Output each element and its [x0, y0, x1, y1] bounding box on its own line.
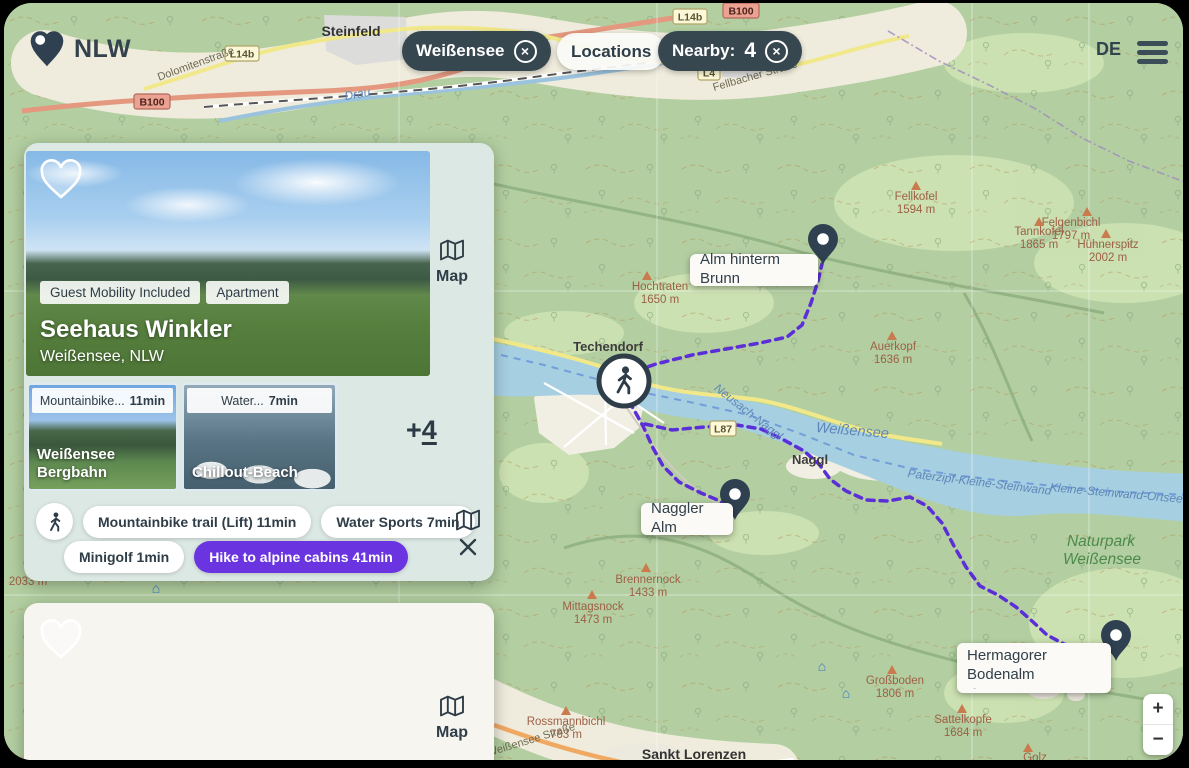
thumbnail-caption: Weißensee Bergbahn — [37, 446, 147, 484]
close-card-icon[interactable] — [458, 537, 478, 557]
show-on-map-button[interactable]: Map — [420, 695, 484, 742]
map-peak-elevation: 1594 m — [897, 204, 935, 216]
property-card-seehaus-winkler[interactable]: Guest Mobility Included Apartment Seehau… — [24, 143, 494, 581]
favorite-heart-icon[interactable] — [38, 619, 84, 661]
locations-label: Locations — [571, 42, 651, 62]
map-peak-elevation: 1684 m — [944, 727, 982, 739]
activity-chip-watersports[interactable]: Water Sports 7min — [321, 506, 474, 538]
map-peak-label: Hochtraten — [632, 281, 688, 293]
svg-text:B100: B100 — [728, 6, 753, 18]
svg-text:L87: L87 — [714, 424, 732, 436]
map-icon — [439, 239, 465, 261]
map-peak-label: Tannkofel — [1014, 226, 1063, 238]
map-peak-label: Großboden — [866, 675, 924, 687]
map-button-label: Map — [420, 268, 484, 286]
walker-position-icon[interactable] — [599, 356, 649, 406]
hut-icon: ⌂ — [818, 658, 826, 674]
activity-chip-minigolf[interactable]: Minigolf 1min — [64, 541, 184, 573]
map-peak-elevation: 1473 m — [574, 614, 612, 626]
property-title: Seehaus Winkler — [40, 316, 420, 344]
property-location: Weißensee, NLW — [40, 348, 420, 366]
map-button-label: Map — [420, 724, 484, 742]
map-label: Naggl — [792, 452, 828, 467]
map-label: Techendorf — [573, 339, 643, 354]
road-badge-L14b: L14b — [673, 9, 707, 24]
external-link-icon — [967, 688, 982, 690]
svg-text:B100: B100 — [139, 97, 164, 109]
activity-thumbnail-chillout-beach[interactable]: Water...7min Chillout-Beach — [182, 383, 337, 491]
map-peak-elevation: 1433 m — [629, 587, 667, 599]
map-label: Naturpark — [1067, 533, 1136, 550]
activity-thumbnail-bergbahn[interactable]: Mountainbike...11min Weißensee Bergbahn — [27, 383, 178, 491]
property-photo[interactable]: Guest Mobility Included Apartment Seehau… — [26, 151, 430, 376]
map-peak-label: Golz — [1023, 752, 1047, 760]
property-photo[interactable]: Hotel Spa Yoga — [26, 611, 430, 760]
filter-chip-weissensee[interactable]: Weißensee × — [402, 31, 551, 71]
activity-chip-hike-selected[interactable]: Hike to alpine cabins 41min — [194, 541, 408, 573]
map-zoom-control: + − — [1143, 694, 1173, 755]
map-peak-elevation: 1636 m — [874, 354, 912, 366]
map-peak-label: Fellkofel — [895, 191, 938, 203]
activity-chip-mountainbike[interactable]: Mountainbike trail (Lift) 11min — [83, 506, 311, 538]
map-icon-small[interactable] — [455, 509, 481, 531]
walking-mode-chip[interactable] — [36, 503, 73, 540]
logo-text: NLW — [74, 35, 131, 64]
activity-chip-row-2: Minigolf 1min Hike to alpine cabins 41mi… — [64, 541, 408, 573]
map-peak-elevation: 1865 m — [1020, 239, 1058, 251]
app-window: L14bL14bB100B100L4L87 SteinfeldFellbachT… — [0, 0, 1189, 768]
nearby-count: 4 — [744, 39, 756, 63]
show-on-map-button[interactable]: Map — [420, 239, 484, 286]
map-peak-label: Hühnerspitz — [1077, 239, 1139, 251]
road-badge-L87: L87 — [710, 421, 736, 436]
property-meta: Guest Mobility Included Apartment Seehau… — [40, 281, 420, 366]
map-label: Sankt Lorenzen — [642, 746, 746, 760]
thumbnail-badge: Water...7min — [187, 388, 332, 413]
favorite-heart-icon[interactable] — [38, 159, 84, 201]
map-peak-elevation: 1806 m — [876, 688, 914, 700]
road-badge-B100: B100 — [723, 3, 759, 18]
locations-button[interactable]: Locations — [557, 33, 665, 70]
road-badge-B100: B100 — [134, 94, 170, 109]
map-label: Weißensee — [1063, 551, 1141, 568]
map-label: Steinfeld — [321, 23, 380, 39]
nearby-chip[interactable]: Nearby: 4 × — [658, 31, 802, 71]
map-peak-elevation: 2002 m — [1089, 252, 1127, 264]
map-peak-elevation: 763 m — [550, 729, 582, 741]
map-icon — [439, 695, 465, 717]
nearby-label: Nearby: — [672, 41, 735, 61]
hut-icon: ⌂ — [152, 580, 160, 596]
map-peak-label: Sattelkopfe — [934, 714, 992, 726]
filter-chip-label: Weißensee — [416, 41, 505, 61]
walking-person-icon — [46, 512, 64, 532]
hut-icon: ⌂ — [842, 685, 850, 701]
thumbnail-caption: Chillout-Beach — [192, 464, 302, 483]
activity-chip-row-1: Mountainbike trail (Lift) 11min Water Sp… — [36, 503, 475, 540]
filter-chip-close-icon[interactable]: × — [514, 40, 537, 63]
zoom-in-button[interactable]: + — [1143, 694, 1173, 725]
nearby-close-icon[interactable]: × — [765, 40, 788, 63]
thumbnail-badge: Mountainbike...11min — [32, 388, 173, 413]
more-activities-button[interactable]: +4 — [406, 415, 437, 446]
logo-heart-pin-icon — [28, 27, 66, 71]
map-peak-label: Mittagsnock — [562, 601, 624, 613]
svg-text:L14b: L14b — [678, 12, 703, 24]
map-peak-elevation: 1650 m — [641, 294, 679, 306]
app-logo[interactable]: NLW — [28, 27, 131, 71]
tag-guest-mobility: Guest Mobility Included — [40, 281, 200, 304]
poi-label-hermagorer-bodenalm[interactable]: Hermagorer Bodenalm — [957, 643, 1111, 693]
map-peak-label: Brennernock — [615, 574, 680, 586]
map-peak-label: Rossmannbichl — [527, 716, 606, 728]
poi-label-naggler-alm[interactable]: Naggler Alm — [641, 503, 733, 535]
language-switcher[interactable]: DE — [1096, 39, 1121, 60]
map-viewport: L14bL14bB100B100L4L87 SteinfeldFellbachT… — [4, 3, 1183, 760]
poi-label-alm-hinterm-brunn[interactable]: Alm hinterm Brunn — [690, 254, 818, 286]
map-peak-label: Auerkopf — [870, 341, 917, 353]
property-card-das-leonhard[interactable]: Hotel Spa Yoga Map — [24, 603, 494, 760]
zoom-out-button[interactable]: − — [1143, 725, 1173, 755]
menu-icon[interactable] — [1137, 41, 1168, 68]
tag-apartment: Apartment — [206, 281, 288, 304]
